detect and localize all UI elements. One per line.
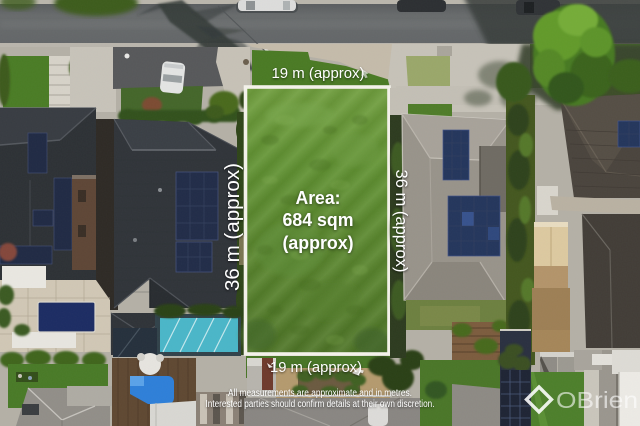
svg-text:Interested parties should conf: Interested parties should confirm detail… xyxy=(206,399,435,410)
svg-text:19 m (approx): 19 m (approx) xyxy=(272,65,365,82)
svg-text:OBrien: OBrien xyxy=(556,387,638,413)
svg-text:36 m (approx): 36 m (approx) xyxy=(392,170,411,273)
svg-text:(approx): (approx) xyxy=(283,233,354,253)
svg-text:36 m (approx): 36 m (approx) xyxy=(222,163,244,291)
svg-text:684 sqm: 684 sqm xyxy=(283,210,354,230)
svg-text:All measurements are approxima: All measurements are approximate and in … xyxy=(228,388,412,399)
svg-text:19 m (approx): 19 m (approx) xyxy=(270,359,362,376)
svg-text:Area:: Area: xyxy=(296,188,341,208)
